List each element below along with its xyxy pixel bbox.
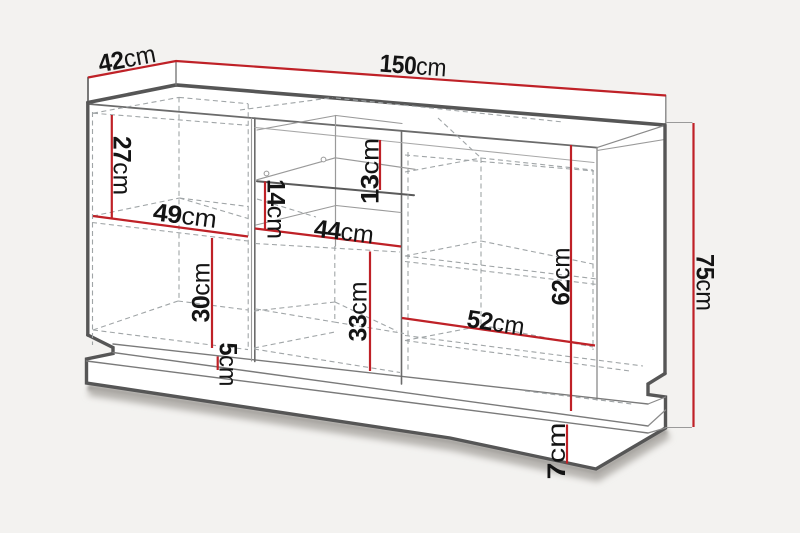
svg-text:33cm: 33cm: [345, 282, 373, 342]
svg-text:5cm: 5cm: [214, 343, 242, 387]
svg-text:13cm: 13cm: [357, 138, 385, 204]
svg-text:7cm: 7cm: [543, 423, 571, 480]
svg-text:62cm: 62cm: [548, 248, 576, 306]
svg-text:75cm: 75cm: [691, 254, 719, 311]
svg-text:27cm: 27cm: [108, 136, 136, 195]
svg-text:14cm: 14cm: [262, 179, 290, 239]
svg-text:150cm: 150cm: [379, 50, 448, 83]
svg-text:30cm: 30cm: [188, 263, 216, 323]
